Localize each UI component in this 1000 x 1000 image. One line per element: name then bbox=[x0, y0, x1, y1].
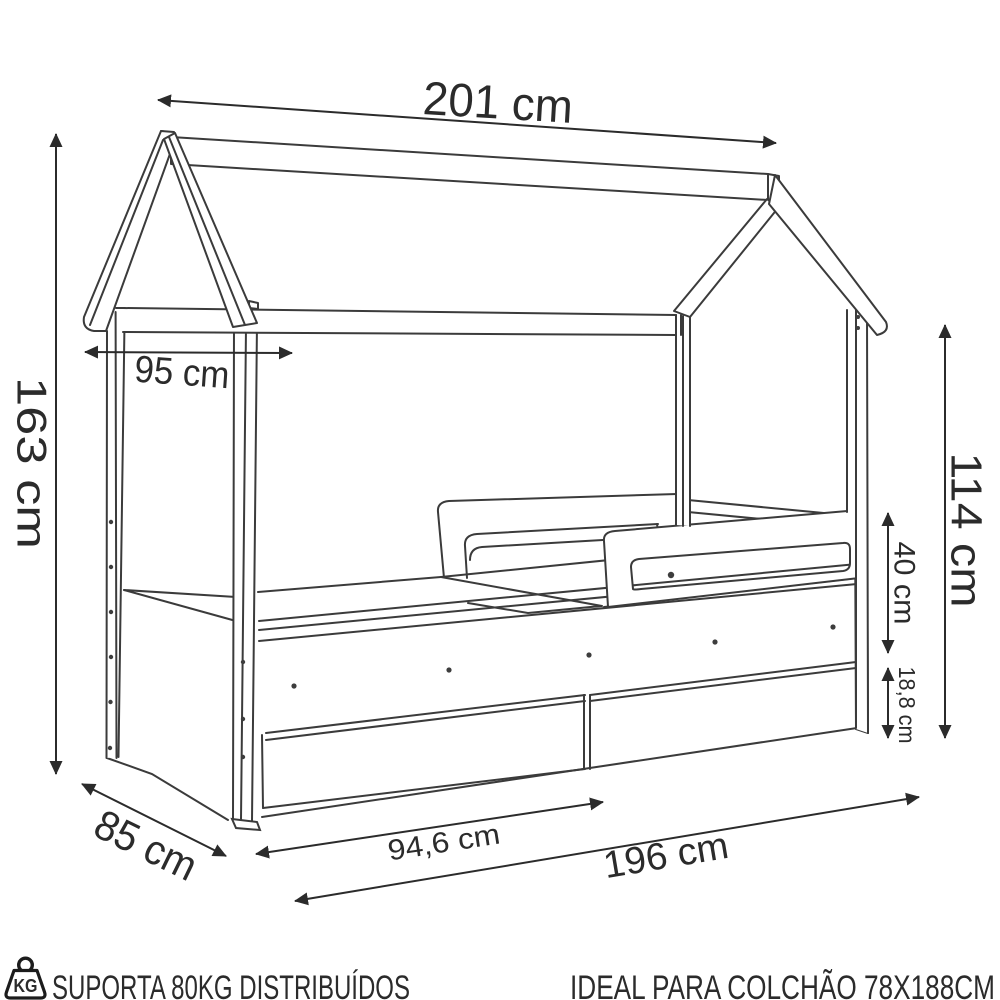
svg-text:IDEAL PARA COLCHÃO 78X188CM: IDEAL PARA COLCHÃO 78X188CM bbox=[570, 969, 995, 1000]
svg-text:18,8 cm: 18,8 cm bbox=[894, 667, 920, 744]
svg-text:114 cm: 114 cm bbox=[942, 453, 991, 608]
svg-text:SUPORTA 80KG DISTRIBUÍDOS: SUPORTA 80KG DISTRIBUÍDOS bbox=[52, 969, 410, 1000]
svg-text:196 cm: 196 cm bbox=[600, 825, 731, 887]
svg-text:94,6 cm: 94,6 cm bbox=[386, 819, 503, 868]
svg-text:95 cm: 95 cm bbox=[133, 349, 231, 398]
svg-text:85 cm: 85 cm bbox=[87, 800, 205, 890]
svg-text:40 cm: 40 cm bbox=[888, 542, 921, 625]
svg-text:201 cm: 201 cm bbox=[422, 71, 575, 133]
svg-text:KG: KG bbox=[14, 976, 38, 996]
svg-text:163 cm: 163 cm bbox=[9, 377, 56, 549]
